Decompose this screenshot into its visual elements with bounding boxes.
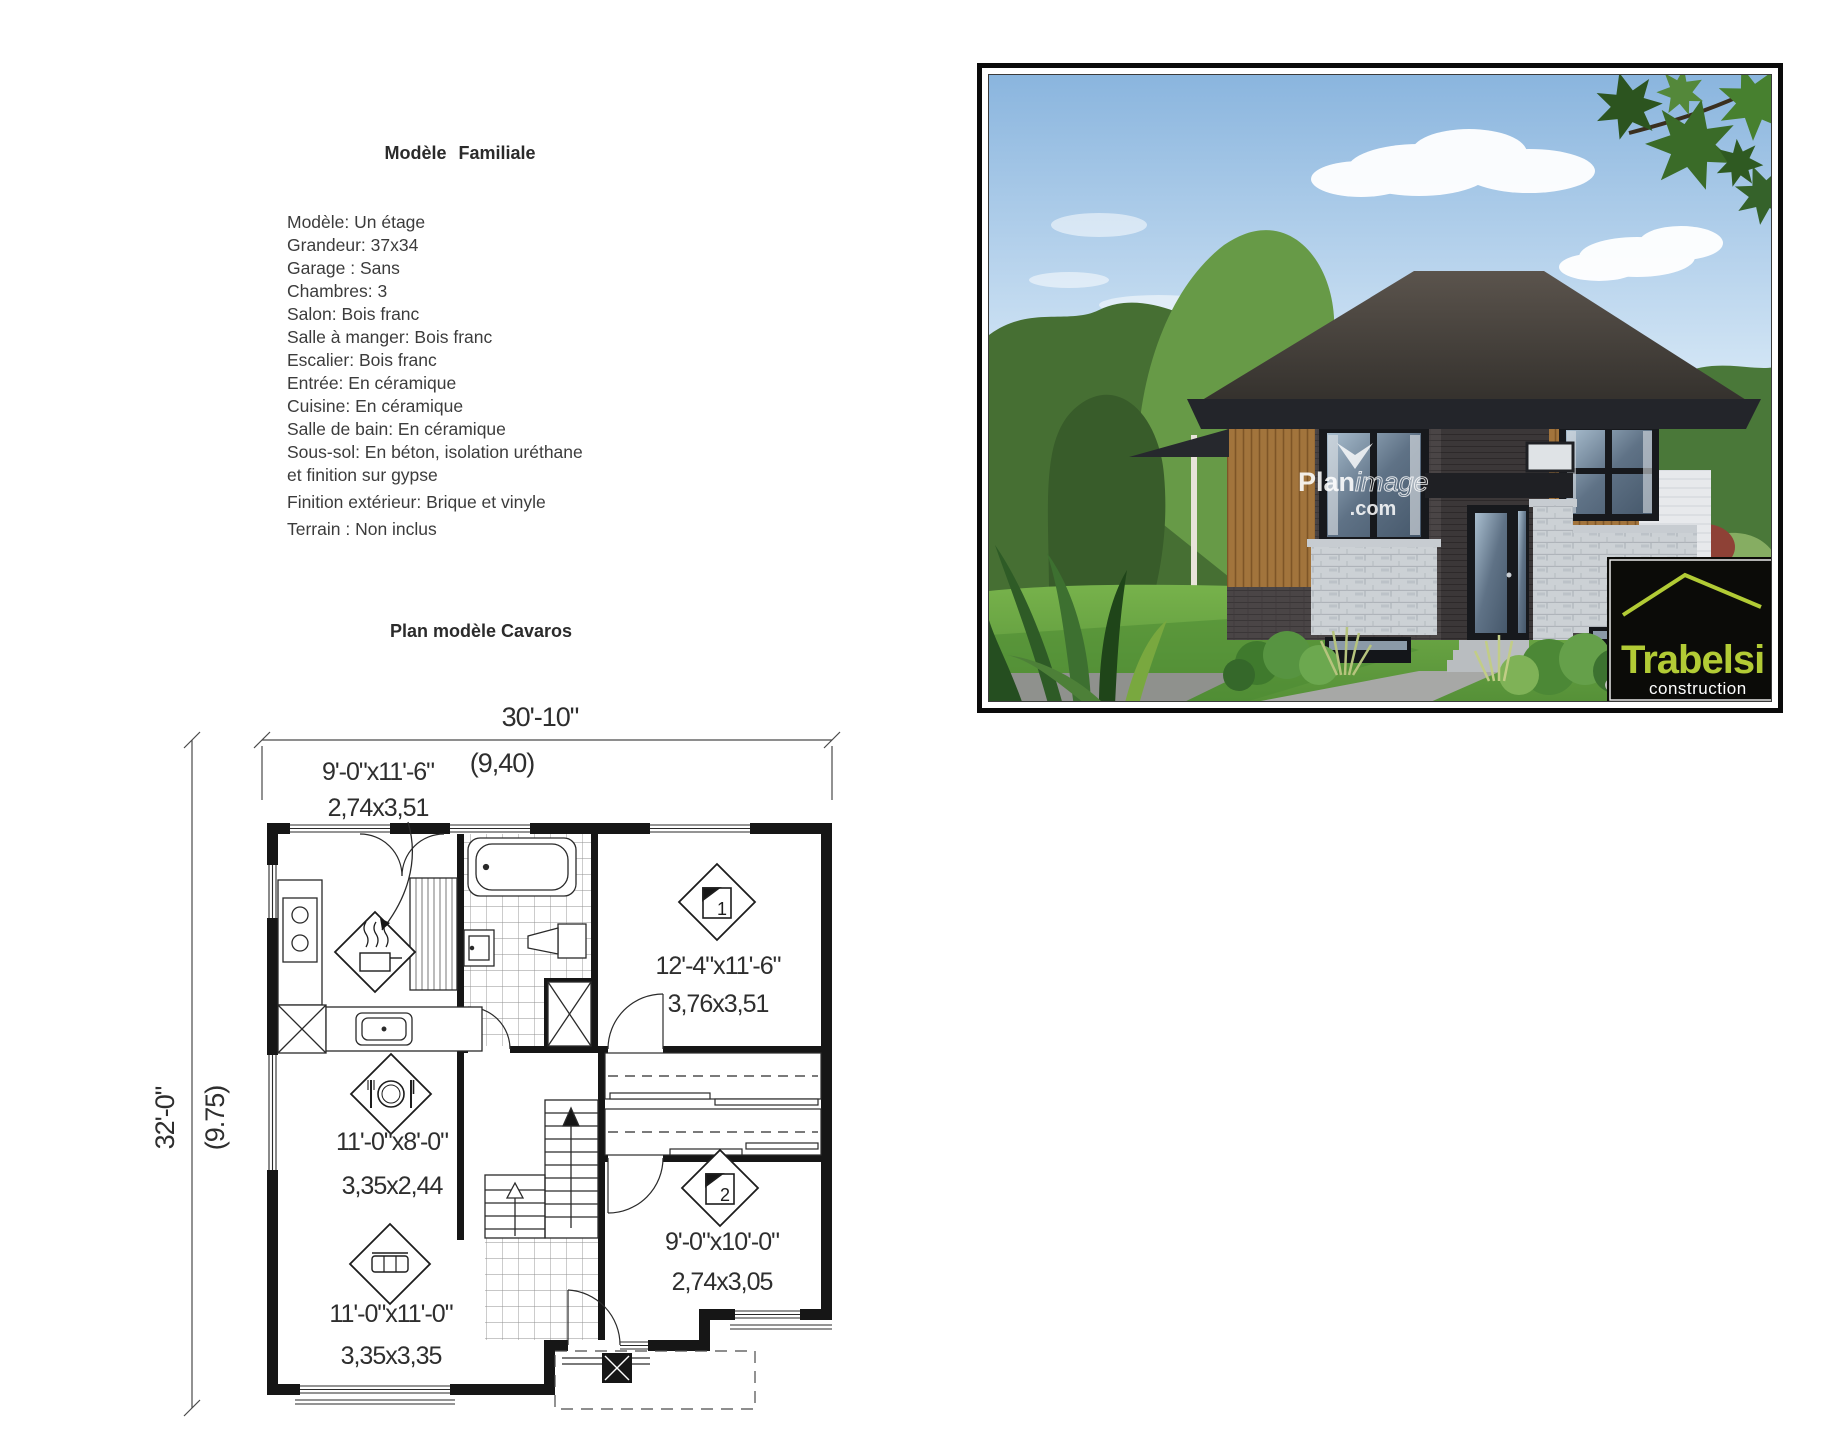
roof-fascia <box>1187 399 1761 429</box>
stone-cap-left <box>1307 539 1441 547</box>
builder-logo: Trabelsi construction <box>1607 557 1772 702</box>
watermark-plan: Plan <box>1298 467 1355 497</box>
birch-trunk <box>1191 435 1197 595</box>
porch <box>555 1351 755 1409</box>
dim-height-ft: 32'-0" <box>150 1086 180 1149</box>
bedroom2-dim-ft: 9'-0"x10'-0" <box>665 1228 779 1256</box>
plan-title: Plan modèle Cavaros <box>331 621 631 642</box>
house-photo-frame: Plan image .com Trabelsi construction <box>977 63 1783 713</box>
spec-line: Salle de bain: En céramique <box>287 418 617 441</box>
entry-tile-floor <box>485 1238 605 1340</box>
bedroom1-number: 1 <box>717 899 727 919</box>
spec-list: Modèle: Un étage Grandeur: 37x34 Garage … <box>287 211 617 541</box>
bedroom1-door <box>608 994 663 1049</box>
kitchen-label-arrow <box>382 822 412 930</box>
dim-width-m: (9,40) <box>470 748 535 778</box>
stairs <box>485 1100 598 1238</box>
living-dim-m: 3,35x3,35 <box>341 1342 442 1370</box>
bedroom1-dim-m: 3,76x3,51 <box>668 990 769 1018</box>
house-rendering: Plan image .com Trabelsi construction <box>989 75 1772 702</box>
fridge-cabinet <box>410 878 457 990</box>
spec-line: Garage : Sans <box>287 257 617 280</box>
logo-subtitle: construction <box>1649 679 1747 698</box>
kitchen-symbol <box>335 912 415 992</box>
bathroom-window <box>450 825 530 832</box>
watermark-domain: .com <box>1350 498 1397 520</box>
stone-pillar <box>1533 505 1573 640</box>
clerestory-window <box>1527 443 1573 471</box>
living-dim-ft: 11'-0"x11'-0" <box>329 1300 452 1328</box>
dimension-left <box>184 732 200 1416</box>
linen-closet <box>548 982 591 1046</box>
logo-name: Trabelsi <box>1621 638 1764 682</box>
bedroom2-dim-m: 2,74x3,05 <box>672 1268 773 1296</box>
document-page: Modèle Familiale Modèle: Un étage Grande… <box>0 0 1846 1438</box>
closets <box>605 1053 821 1155</box>
front-door <box>1467 505 1529 640</box>
spec-line: Salle à manger: Bois franc <box>287 326 617 349</box>
kitchen-dim-ft: 9'-0"x11'-6" <box>322 758 434 786</box>
spec-line: Escalier: Bois franc <box>287 349 617 372</box>
spec-line: Cuisine: En céramique <box>287 395 617 418</box>
bedroom1-window <box>650 825 750 832</box>
bedroom1-dim-ft: 12'-4"x11'-6" <box>655 952 780 980</box>
kitchen-top-window <box>290 825 390 832</box>
spec-line: Salon: Bois franc <box>287 303 617 326</box>
bedroom2-number: 2 <box>720 1185 730 1205</box>
wood-accent-left <box>1227 407 1315 587</box>
entry-canopy <box>1425 473 1573 498</box>
kitchen-dim-m: 2,74x3,51 <box>328 794 429 822</box>
spec-line: Sous-sol: En béton, isolation uréthane <box>287 441 617 464</box>
house-photo: Plan image .com Trabelsi construction <box>988 74 1772 702</box>
spec-line: Entrée: En céramique <box>287 372 617 395</box>
dining-dim-ft: 11'-0"x8'-0" <box>336 1128 448 1156</box>
spec-line: Terrain : Non inclus <box>287 518 617 541</box>
pantry-bifold-doors <box>360 834 444 876</box>
living-window <box>295 1386 455 1404</box>
floor-plan: 30'-10" (9,40) 32'-0" (9.75) <box>150 650 850 1425</box>
dim-height-m: (9.75) <box>200 1086 230 1151</box>
spec-line: Modèle: Un étage <box>287 211 617 234</box>
dining-dim-m: 3,35x2,44 <box>342 1172 444 1200</box>
dim-width-ft: 30'-10" <box>502 702 579 732</box>
stairs-up-arrow <box>563 1108 579 1126</box>
dining-window <box>269 1055 276 1170</box>
stone-wall-left <box>1311 547 1437 635</box>
bedroom2-door <box>608 1158 663 1213</box>
spec-line: Grandeur: 37x34 <box>287 234 617 257</box>
model-title: Modèle Familiale <box>330 143 590 164</box>
spec-line: Finition extérieur: Brique et vinyle <box>287 491 617 514</box>
spec-line: et finition sur gypse <box>287 464 617 487</box>
entry-sidelight <box>620 1342 648 1349</box>
watermark-image: image <box>1355 467 1429 497</box>
kitchen-side-window <box>269 865 276 918</box>
living-symbol <box>350 1224 430 1304</box>
spec-line: Chambres: 3 <box>287 280 617 303</box>
dining-symbol <box>351 1054 431 1134</box>
